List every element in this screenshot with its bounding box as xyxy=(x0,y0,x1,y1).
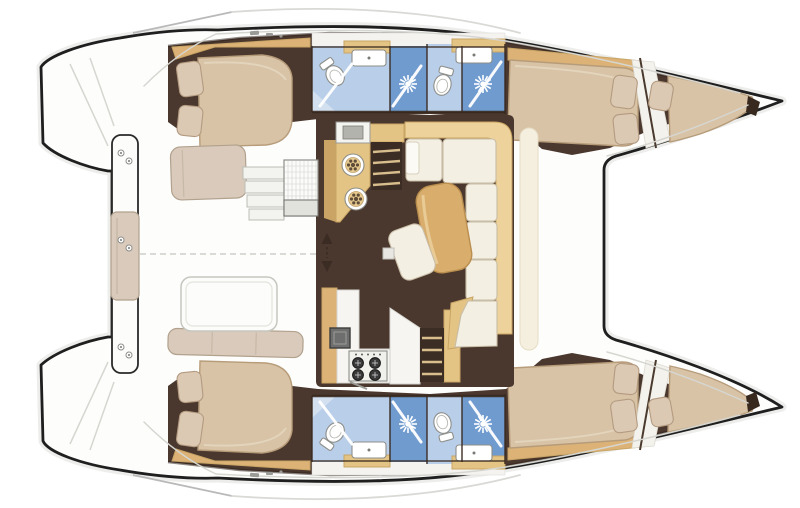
starboard-cockpit-bench xyxy=(168,328,304,358)
round-basin-icon xyxy=(342,154,364,176)
pillow xyxy=(176,105,203,137)
sink-appliance-icon xyxy=(330,328,350,348)
port-companionway-stairs xyxy=(371,142,402,190)
pillow xyxy=(610,74,638,109)
galley-wood-edge xyxy=(324,140,336,222)
starboard-companionway-stairs xyxy=(420,328,444,382)
salon xyxy=(316,115,514,389)
round-basin-icon xyxy=(345,188,367,210)
port-cockpit-bench xyxy=(170,145,247,201)
pillow xyxy=(612,113,639,145)
cockpit-table xyxy=(181,277,277,331)
helm-steps xyxy=(243,167,284,220)
helm-seat-mesh xyxy=(284,160,318,216)
coachroof-front-band xyxy=(520,128,538,350)
aft-cabin-bed xyxy=(198,55,292,147)
sink-icon xyxy=(352,50,386,66)
table-pedestal xyxy=(383,248,394,259)
pillow xyxy=(176,60,204,97)
transom-bench-cushion xyxy=(111,212,139,300)
floorplan-svg xyxy=(0,0,800,508)
oven-appliance-icon xyxy=(336,122,370,143)
pillow xyxy=(648,80,675,111)
catamaran-floorplan xyxy=(0,0,800,508)
settee-armrest xyxy=(406,142,419,174)
galley-counter-landing xyxy=(370,124,404,142)
